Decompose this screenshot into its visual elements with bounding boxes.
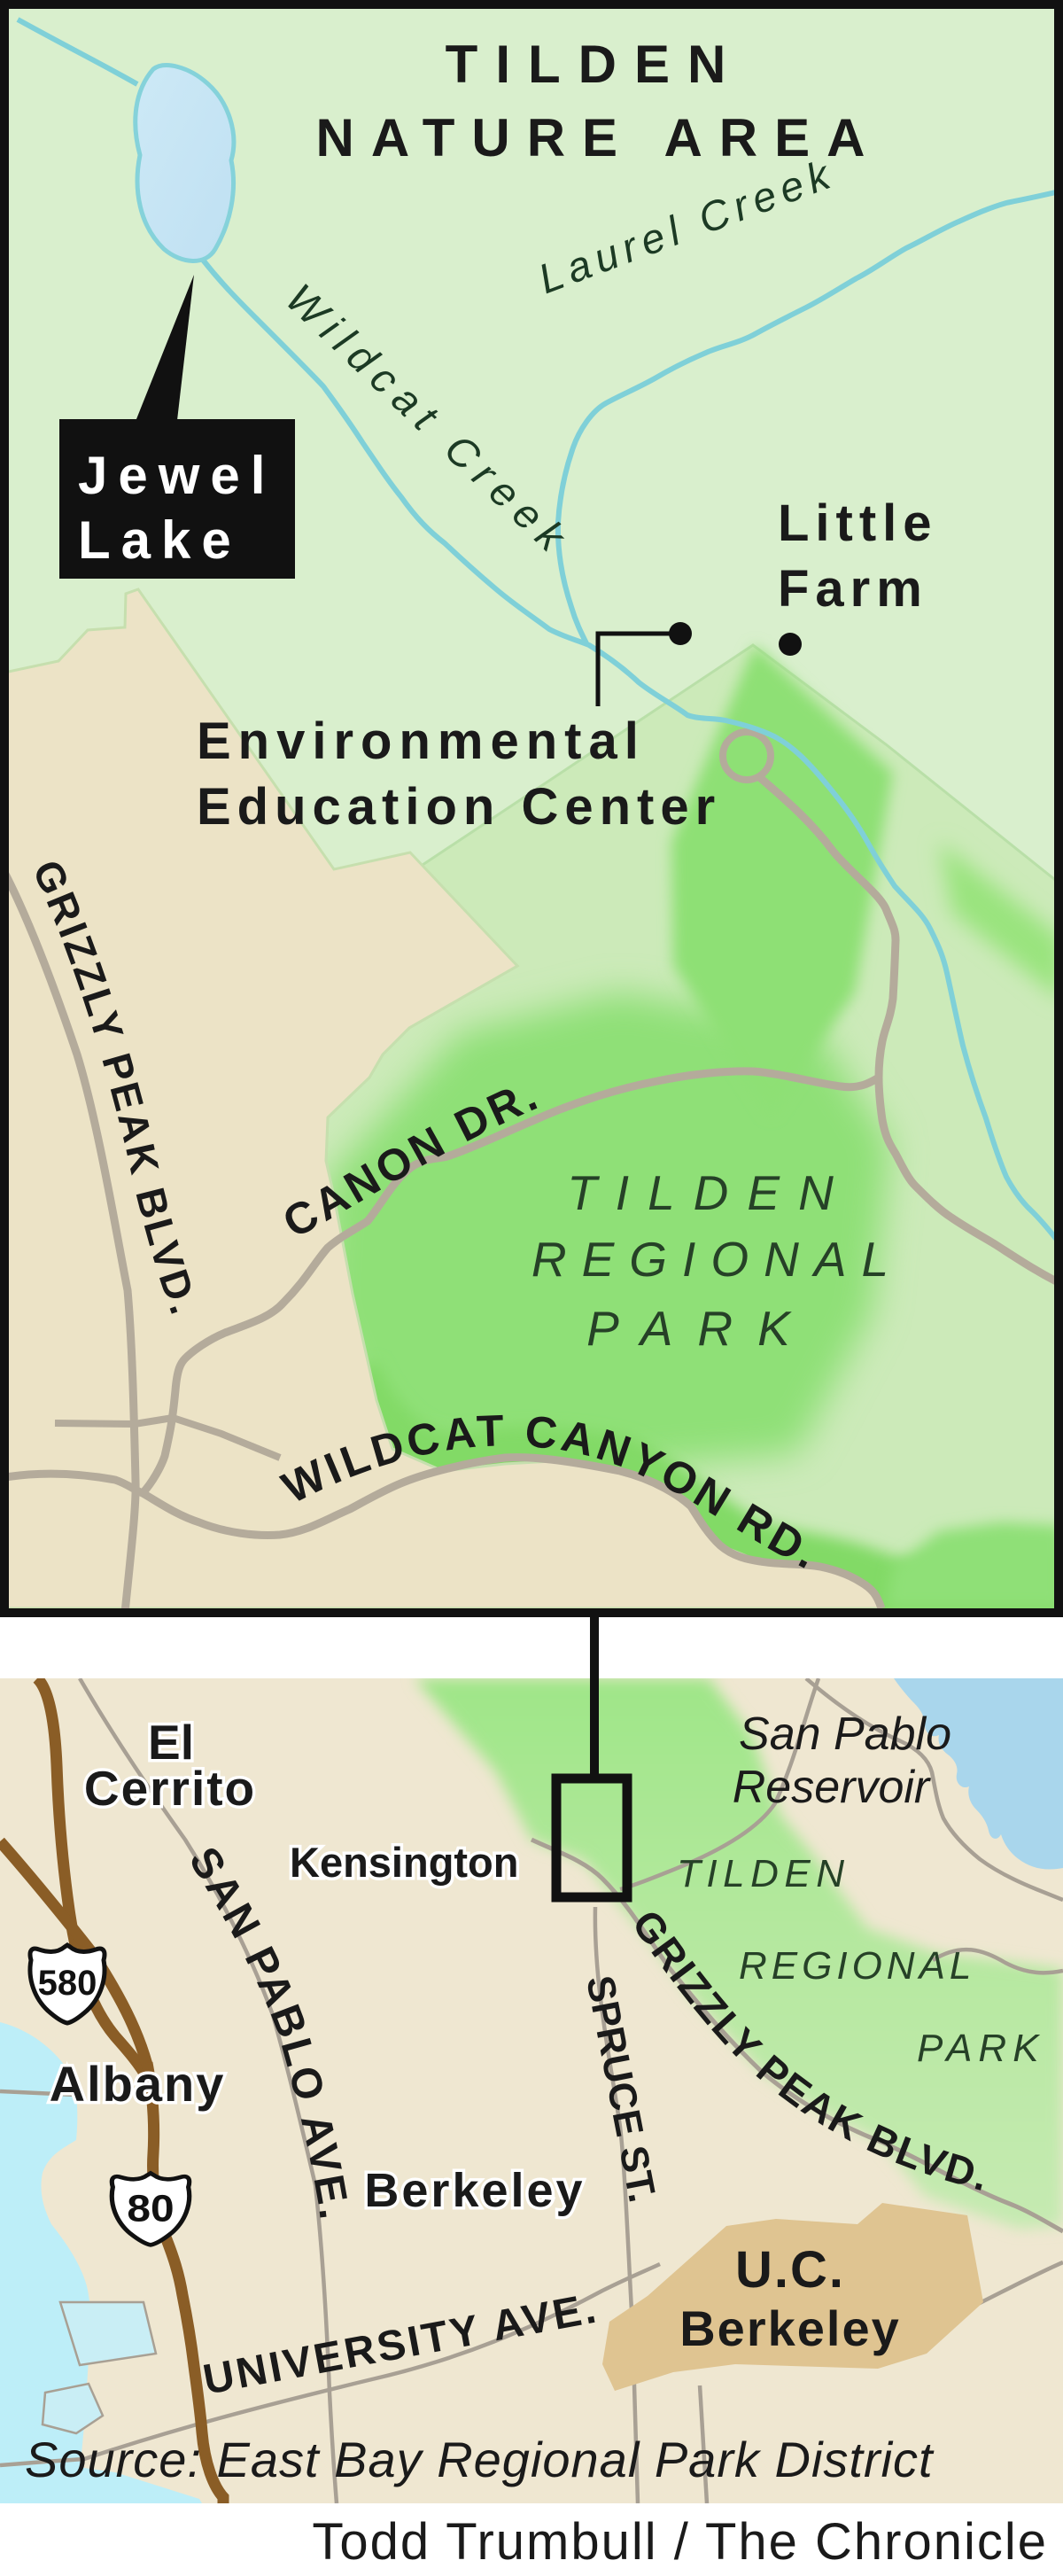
svg-text:San Pablo: San Pablo	[739, 1708, 951, 1760]
svg-text:Education Center: Education Center	[197, 778, 721, 836]
svg-text:REGIONAL: REGIONAL	[739, 1944, 975, 1988]
svg-text:Todd Trumbull / The Chronicle: Todd Trumbull / The Chronicle	[312, 2513, 1048, 2571]
svg-text:580: 580	[38, 1964, 97, 2003]
svg-text:TILDEN: TILDEN	[677, 1852, 850, 1895]
svg-text:PARK: PARK	[586, 1301, 815, 1356]
svg-text:TILDEN: TILDEN	[446, 35, 744, 94]
svg-text:Reservoir: Reservoir	[733, 1762, 932, 1813]
svg-text:TILDEN: TILDEN	[567, 1165, 852, 1220]
svg-text:Jewel: Jewel	[78, 446, 275, 505]
svg-text:Albany: Albany	[50, 2056, 226, 2112]
svg-text:REGIONAL: REGIONAL	[531, 1232, 904, 1287]
svg-text:Berkeley: Berkeley	[364, 2164, 585, 2217]
svg-text:Berkeley: Berkeley	[679, 2300, 901, 2356]
svg-text:80: 80	[127, 2187, 174, 2230]
svg-text:U.C.: U.C.	[735, 2241, 845, 2299]
svg-text:Farm: Farm	[778, 560, 928, 618]
svg-text:Lake: Lake	[78, 510, 242, 570]
svg-text:Environmental: Environmental	[197, 712, 646, 770]
svg-text:Source: East Bay Regional Park: Source: East Bay Regional Park District	[25, 2432, 935, 2487]
svg-text:Cerrito: Cerrito	[84, 1761, 256, 1816]
svg-text:Kensington: Kensington	[290, 1839, 518, 1886]
svg-text:Little: Little	[778, 494, 938, 552]
svg-text:PARK: PARK	[917, 2027, 1045, 2070]
